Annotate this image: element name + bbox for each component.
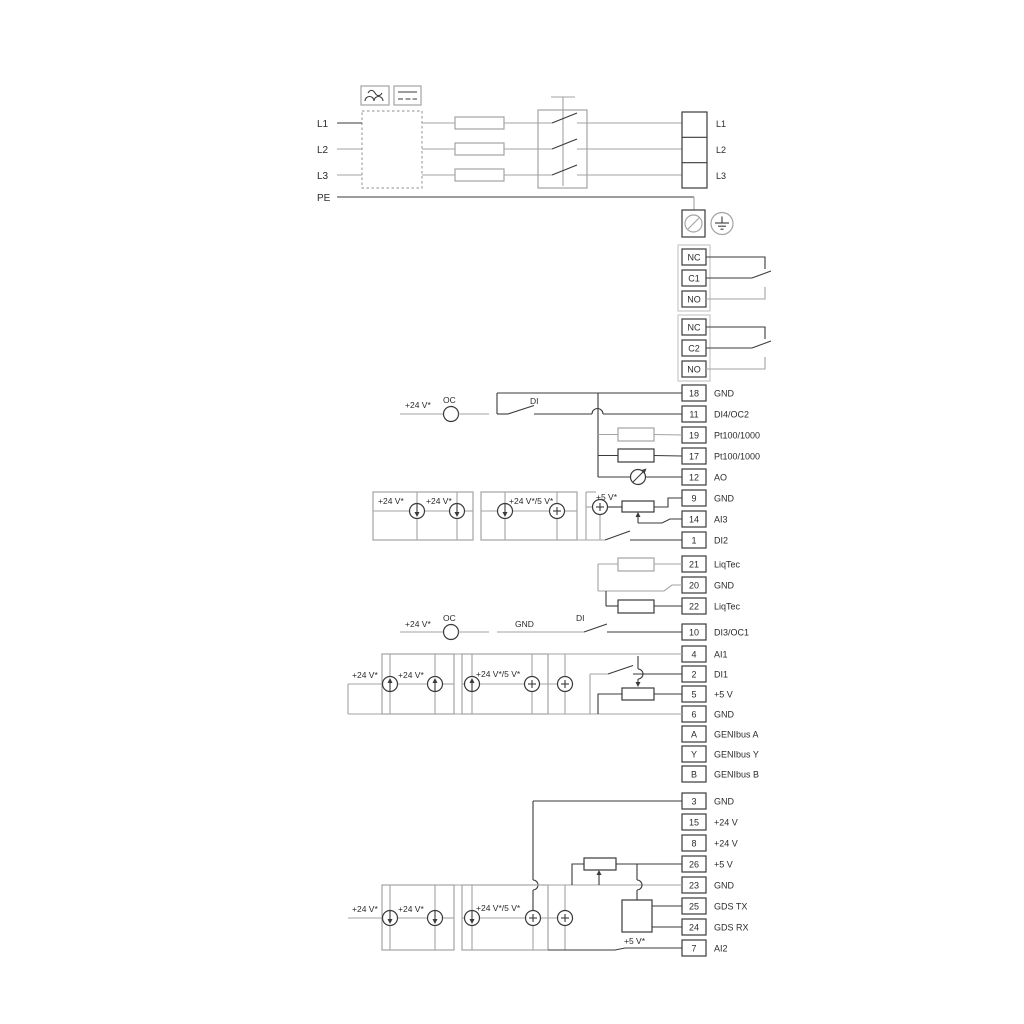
terminal-row: 3GND [682, 793, 735, 809]
v5-label: +5 V* [624, 936, 646, 946]
ai3-sensor-options: +24 V* +24 V* +24 V*/5 V* +5 V* [373, 492, 682, 540]
ai2-sensor-options: +24 V* +24 V* +24 V*/5 V* [348, 801, 682, 950]
terminal-row: 25GDS TX [682, 898, 747, 914]
svg-text:11: 11 [689, 410, 698, 420]
relay1-no: NO [687, 295, 701, 305]
voltage-source-icon [558, 677, 573, 692]
svg-text:GENIbus Y: GENIbus Y [714, 750, 759, 760]
relay2-nc: NC [688, 323, 701, 333]
terminal-row: 24GDS RX [682, 919, 749, 935]
terminal-row: 11DI4/OC2 [682, 406, 749, 422]
mains-out-l1: L1 [716, 119, 726, 129]
svg-text:GND: GND [714, 389, 735, 399]
svg-text:23: 23 [689, 881, 699, 891]
liqtec-group: 21LiqTec 20GND 22LiqTec [598, 556, 741, 614]
mains-out-l3: L3 [716, 171, 726, 181]
relay1-block: NC C1 NO [678, 245, 771, 311]
svg-text:2: 2 [691, 670, 696, 680]
terminal-row: 14AI3 [682, 511, 728, 527]
terminal-row: 10DI3/OC1 [682, 624, 749, 640]
svg-text:DI2: DI2 [714, 536, 728, 546]
relay1-contact-icon [706, 257, 771, 299]
terminal-row: 6GND [682, 706, 735, 722]
svg-text:8: 8 [691, 839, 696, 849]
terminal-row: 15+24 V [682, 814, 738, 830]
svg-text:19: 19 [689, 431, 699, 441]
svg-text:9: 9 [691, 494, 696, 504]
svg-text:3: 3 [691, 797, 696, 807]
gds-sensor-box: +5 V* [622, 864, 682, 946]
v24-5-label: +24 V*/5 V* [509, 496, 554, 506]
v24-label: +24 V* [405, 400, 431, 410]
pe-earth [337, 197, 733, 237]
svg-text:LiqTec: LiqTec [714, 560, 741, 570]
svg-text:22: 22 [689, 602, 699, 612]
v24-label: +24 V* [398, 904, 424, 914]
svg-text:AO: AO [714, 473, 727, 483]
current-source-icon [383, 911, 398, 926]
terminal-row: YGENIbus Y [682, 746, 759, 762]
v24-label: +24 V* [352, 904, 378, 914]
analog-output-meter-icon [598, 469, 682, 485]
ai2-bottom-rail [548, 948, 682, 950]
terminal-row: 22LiqTec [682, 598, 741, 614]
svg-text:18: 18 [689, 389, 699, 399]
svg-text:GND: GND [714, 797, 735, 807]
svg-text:GDS RX: GDS RX [714, 923, 749, 933]
mains-out-l2: L2 [716, 145, 726, 155]
svg-text:DI3/OC1: DI3/OC1 [714, 628, 749, 638]
ac-symbol-icon [361, 86, 389, 105]
v24-label: +24 V* [426, 496, 452, 506]
di-switch-icon [584, 624, 607, 632]
terminal-row: 12AO [682, 469, 727, 485]
potentiometer-icon [608, 498, 683, 523]
terminal-row: 23GND [682, 877, 735, 893]
voltage-source-icon [525, 677, 540, 692]
current-source-icon [465, 911, 480, 926]
terminal-row: 4AI1 [682, 646, 728, 662]
phase-label-pe: PE [317, 193, 331, 204]
svg-text:15: 15 [689, 818, 699, 828]
svg-text:GENIbus A: GENIbus A [714, 730, 759, 740]
terminal-row: 8+24 V [682, 835, 738, 851]
earth-ground-icon [711, 213, 733, 235]
dc-symbol-icon [394, 86, 421, 105]
liqtec-sensor-1-icon [598, 558, 682, 591]
current-source-icon [383, 677, 398, 692]
terminal-row: 2DI1 [682, 666, 728, 682]
terminal-row: 18GND [682, 385, 735, 401]
svg-text:DI1: DI1 [714, 670, 728, 680]
wiring-diagram: L1 L2 L3 PE [0, 0, 1024, 1024]
svg-text:14: 14 [689, 515, 699, 525]
svg-text:1: 1 [691, 536, 696, 546]
phase-label-l3: L3 [317, 171, 329, 182]
terminal-row: AGENIbus A [682, 726, 759, 742]
current-source-icon [498, 504, 513, 519]
svg-text:DI4/OC2: DI4/OC2 [714, 410, 749, 420]
svg-text:17: 17 [689, 452, 699, 462]
screw-terminal-icon [682, 210, 705, 237]
svg-text:AI1: AI1 [714, 650, 728, 660]
svg-text:10: 10 [689, 628, 699, 638]
di3-oc1-wiring: +24 V* OC GND DI [400, 613, 682, 640]
liqtec-sensor-2-icon [606, 591, 682, 613]
relay2-contact-icon [706, 327, 771, 369]
current-source-icon [428, 911, 443, 926]
v24-5-label: +24 V*/5 V* [476, 903, 521, 913]
terminal-row: BGENIbus B [682, 766, 759, 782]
di4-oc2-wiring: +24 V* OC DI [400, 393, 682, 477]
v24-label: +24 V* [405, 619, 431, 629]
fuse-icons [455, 117, 504, 181]
relay1-c1: C1 [688, 274, 700, 284]
pt100-sensor-2-icon [598, 449, 682, 462]
gnd-label: GND [515, 619, 534, 629]
phase-wires [337, 123, 682, 175]
svg-text:GND: GND [714, 710, 735, 720]
mains-terminal-block: L1 L2 L3 [682, 112, 726, 188]
relay1-nc: NC [688, 253, 701, 263]
terminal-row: 26+5 V [682, 856, 733, 872]
terminal-row: 7AI2 [682, 940, 728, 956]
open-collector-icon [444, 625, 459, 640]
current-source-icon [410, 504, 425, 519]
svg-text:GND: GND [714, 881, 735, 891]
io-group-3: 3GND 15+24 V 8+24 V 26+5 V 23GND 25GDS T… [682, 793, 749, 956]
svg-text:AI3: AI3 [714, 515, 728, 525]
terminal-row: 21LiqTec [682, 556, 741, 572]
svg-text:Y: Y [691, 750, 697, 760]
svg-text:4: 4 [691, 650, 696, 660]
oc-label: OC [443, 613, 456, 623]
svg-text:12: 12 [689, 473, 699, 483]
v24-5-label: +24 V*/5 V* [476, 669, 521, 679]
di1-switch-icon [590, 666, 682, 715]
v24-label: +24 V* [352, 670, 378, 680]
v24-label: +24 V* [378, 496, 404, 506]
phase-label-l2: L2 [317, 145, 329, 156]
svg-text:25: 25 [689, 902, 699, 912]
svg-text:+5 V: +5 V [714, 860, 733, 870]
relay2-c2: C2 [688, 344, 700, 354]
potentiometer-icon [572, 858, 682, 885]
voltage-source-icon [593, 500, 608, 515]
current-source-icon [465, 677, 480, 692]
svg-text:LiqTec: LiqTec [714, 602, 741, 612]
voltage-source-icon [550, 504, 565, 519]
di-label: DI [576, 613, 585, 623]
svg-text:+5 V: +5 V [714, 690, 733, 700]
svg-text:Pt100/1000: Pt100/1000 [714, 431, 760, 441]
svg-text:21: 21 [689, 560, 699, 570]
power-section: L1 L2 L3 PE [317, 86, 733, 237]
svg-text:20: 20 [689, 581, 699, 591]
pt100-sensor-1-icon [598, 428, 682, 441]
voltage-source-icon [558, 911, 573, 926]
filter-box [362, 111, 422, 188]
open-collector-icon [444, 407, 459, 422]
svg-text:GENIbus B: GENIbus B [714, 770, 759, 780]
svg-text:+24 V: +24 V [714, 839, 738, 849]
terminal-row: 20GND [682, 577, 735, 593]
svg-text:GND: GND [714, 581, 735, 591]
di2-switch-icon [577, 531, 682, 540]
terminal-row: 5+5 V [682, 686, 733, 702]
svg-text:26: 26 [689, 860, 699, 870]
svg-text:GND: GND [714, 494, 735, 504]
terminal-row: 9GND [682, 490, 735, 506]
svg-text:AI2: AI2 [714, 944, 728, 954]
v24-label: +24 V* [398, 670, 424, 680]
current-source-icon [428, 677, 443, 692]
current-source-icon [450, 504, 465, 519]
ai1-sensor-options: +24 V* +24 V* +24 V*/5 V* [348, 654, 682, 714]
svg-text:Pt100/1000: Pt100/1000 [714, 452, 760, 462]
oc-label: OC [443, 395, 456, 405]
potentiometer-icon [598, 656, 682, 714]
diagram-canvas: L1 L2 L3 PE [0, 0, 1024, 1024]
relay2-no: NO [687, 365, 701, 375]
main-switch-icon [538, 97, 587, 188]
di-switch-icon [508, 406, 534, 415]
svg-text:+24 V: +24 V [714, 818, 738, 828]
svg-text:6: 6 [691, 710, 696, 720]
svg-text:B: B [691, 770, 697, 780]
svg-text:GDS TX: GDS TX [714, 902, 747, 912]
di-label: DI [530, 396, 539, 406]
phase-label-l1: L1 [317, 119, 329, 130]
svg-text:24: 24 [689, 923, 699, 933]
io-group-1: 18GND 11DI4/OC2 19Pt100/1000 17Pt100/100… [400, 385, 760, 548]
voltage-source-icon [526, 911, 541, 926]
svg-text:7: 7 [691, 944, 696, 954]
svg-text:A: A [691, 730, 697, 740]
relay2-block: NC C2 NO [678, 315, 771, 381]
terminal-row: 19Pt100/1000 [682, 427, 760, 443]
terminal-row: 1DI2 [682, 532, 728, 548]
terminal-row: 17Pt100/1000 [682, 448, 760, 464]
svg-text:5: 5 [691, 690, 696, 700]
